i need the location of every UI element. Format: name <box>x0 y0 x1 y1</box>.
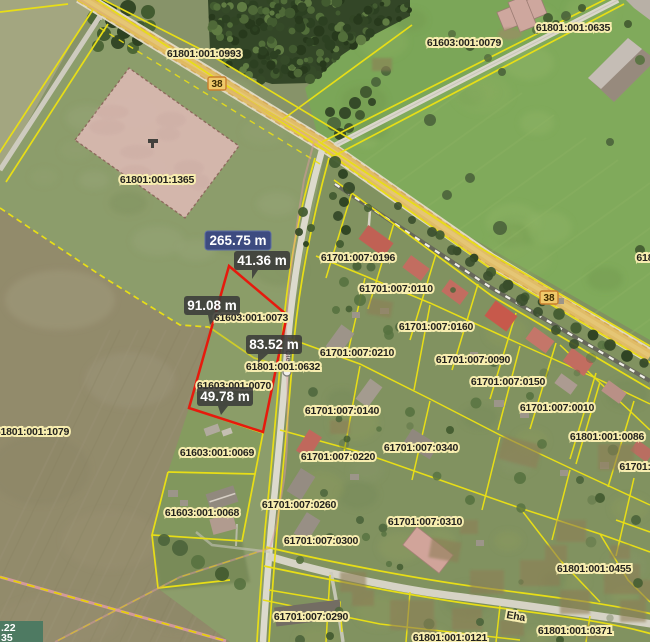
svg-text:83.52 m: 83.52 m <box>249 337 299 352</box>
svg-text:91.08 m: 91.08 m <box>187 298 237 313</box>
svg-text:41.36 m: 41.36 m <box>237 253 287 268</box>
svg-text:38: 38 <box>211 79 223 90</box>
svg-text:265.75 m: 265.75 m <box>209 233 266 248</box>
svg-text:35: 35 <box>1 632 13 642</box>
svg-text:49.78 m: 49.78 m <box>200 389 250 404</box>
svg-text:38: 38 <box>543 293 555 304</box>
